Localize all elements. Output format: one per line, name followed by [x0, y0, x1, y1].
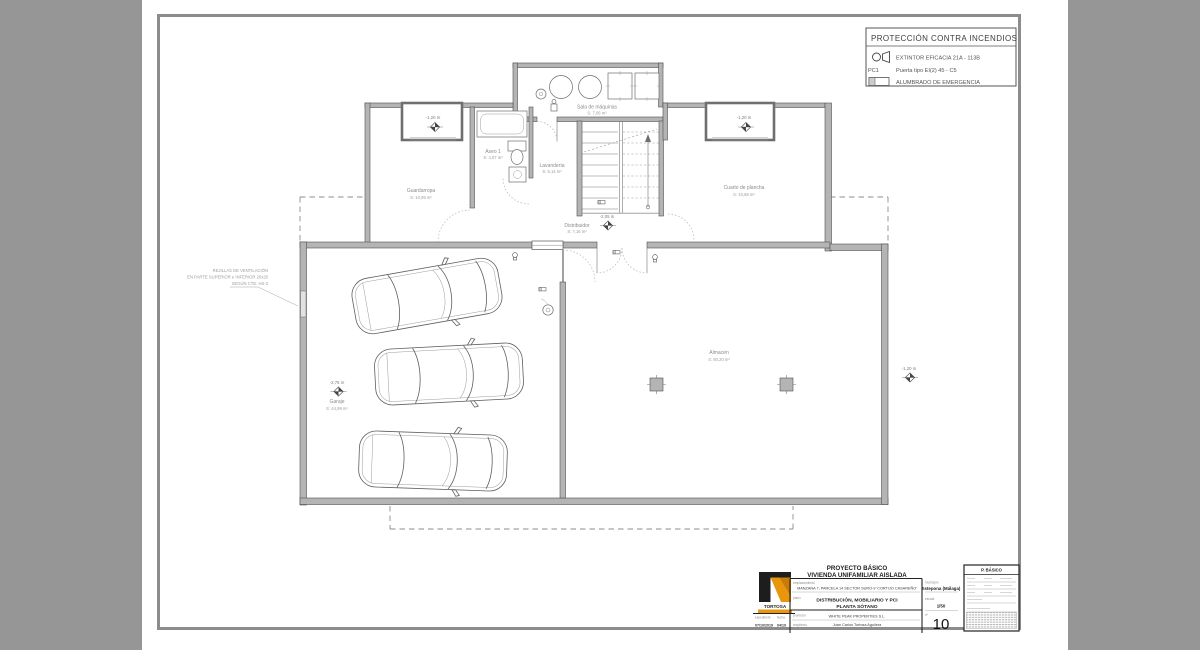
fecha-value: 04/19	[777, 624, 786, 628]
room-plancha-area: S: 10,86 m²	[733, 192, 755, 197]
escala-value: 1/50	[937, 604, 946, 609]
stamp-fine-print	[967, 612, 1017, 629]
ventilation-grille	[301, 291, 307, 317]
fire-protection-symbols	[513, 201, 658, 316]
columns	[647, 375, 796, 394]
room-distribuidor-area: S: 7,16 m²	[567, 229, 587, 234]
expediente-label: expediente	[755, 616, 771, 620]
legend-door-code: PC1	[868, 68, 879, 74]
garage-door	[532, 241, 563, 250]
room-aseo-area: S: 4,07 m²	[483, 155, 503, 160]
stairs	[582, 122, 659, 214]
floor-plan: Sala de máquinas S: 7,06 m² Aseo 1 S: 4,…	[187, 63, 918, 529]
sheet-number: 10	[933, 616, 950, 633]
arquitecto-label: arquitecto	[793, 623, 807, 627]
level-lw-left: -1,20 m	[426, 115, 441, 120]
escala-label: escala	[925, 597, 934, 601]
level-exterior-right: -1,20 m	[902, 366, 917, 371]
project-type: PROYECTO BÁSICO	[827, 565, 888, 572]
room-almacen-area: S: 80,20 m²	[708, 357, 730, 362]
stamp-box: P. BÁSICO	[964, 565, 1019, 631]
lightwell-left	[402, 103, 462, 140]
tortosa-logo: TORTOSA	[758, 572, 792, 614]
emplazamiento-label: emplazamiento	[793, 581, 815, 585]
stamp-title: P. BÁSICO	[981, 568, 1003, 573]
municipio-label: municipio	[925, 581, 939, 585]
legend-extintor-label: EXTINTOR EFICACIA 21A - 113B	[896, 56, 980, 62]
promotor-value: WHITE PEAK PROPERTIES S.L.	[829, 615, 886, 619]
room-sala-area: S: 7,06 m²	[587, 111, 607, 116]
fecha-label: fecha	[777, 616, 785, 620]
drawing-svg: Sala de máquinas S: 7,06 m² Aseo 1 S: 4,…	[0, 0, 1200, 650]
promotor-label: promotor	[793, 614, 807, 618]
legend-title: PROTECCIÓN CONTRA INCENDIOS	[871, 34, 1017, 43]
car-1	[348, 249, 506, 343]
annotation-line3: SEGÚN CTE. HS-3	[232, 281, 269, 286]
room-lavanderia-area: S: 5,14 m²	[542, 169, 562, 174]
plano-line1: DISTRIBUCIÓN, MOBILIARIO Y PCI	[816, 596, 898, 604]
level-lw-right: -1,20 m	[737, 115, 752, 120]
expediente-value: 07/10/2019	[755, 624, 773, 628]
emplazamiento-value: MANZANA 7, PARCELA 14 SECTOR SURO-9 'COR…	[797, 586, 917, 591]
legend-box: PROTECCIÓN CONTRA INCENDIOS EXTINTOR EFI…	[866, 28, 1017, 86]
room-almacen-name: Almacén	[709, 350, 729, 356]
room-guardarropa-name: Guardarropa	[407, 188, 436, 194]
title-block: TORTOSA PROYECTO BÁSICO VIVIENDA UNIFAMI…	[753, 565, 1019, 633]
room-garaje-area: S: 44,99 m²	[326, 406, 348, 411]
bathroom-fixtures	[477, 111, 527, 182]
room-plancha-name: Cuarto de plancha	[724, 185, 765, 191]
arquitecto-value: Juan Carlos Tortosa Aguilera	[833, 623, 882, 627]
level-distribuidor: -2,05 m	[600, 214, 615, 219]
legend-door-label: Puerta tipo EI(2) 45 - C5	[896, 68, 957, 74]
plano-label: plano	[793, 596, 801, 600]
car-3	[358, 424, 508, 498]
room-garaje-name: Garaje	[329, 399, 344, 405]
project-name: VIVIENDA UNIFAMILIAR AISLADA	[807, 572, 907, 579]
annotation-line1: REJILLAS DE VENTILACIÓN	[213, 268, 268, 273]
room-guardarropa-area: S: 10,95 m²	[410, 195, 432, 200]
legend-alumbrado-icon	[869, 78, 889, 86]
level-garaje: -2,75 m	[330, 380, 345, 385]
ventilation-annotation: REJILLAS DE VENTILACIÓN EN PARTE SUPERIO…	[187, 268, 298, 306]
annotation-line2: EN PARTE SUPERIOR e INFERIOR 20x20	[187, 275, 268, 280]
municipio-value: Estepona (Málaga)	[922, 586, 961, 591]
numero-label: nº	[925, 613, 929, 617]
car-2	[373, 336, 524, 413]
logo-text: TORTOSA	[764, 604, 787, 609]
legend-alumbrado-label: ALUMBRADO DE EMERGENCIA	[896, 80, 980, 86]
lightwell-right	[706, 103, 774, 140]
